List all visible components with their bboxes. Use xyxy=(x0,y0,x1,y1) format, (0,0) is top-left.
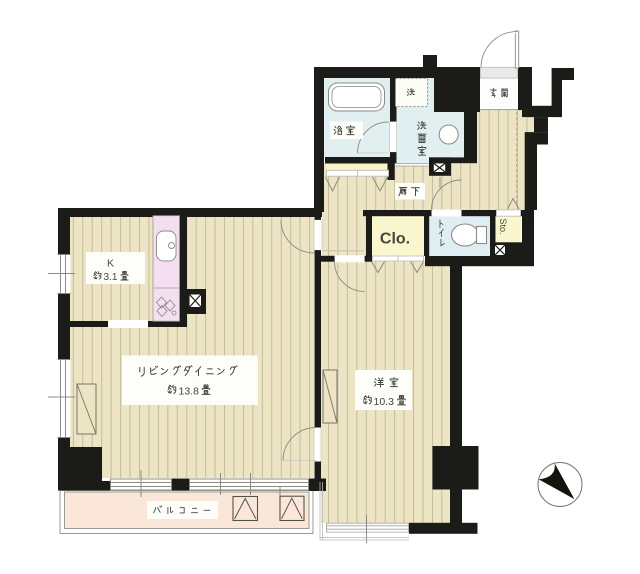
svg-text:Sto.: Sto. xyxy=(498,219,508,235)
svg-text:10.3: 10.3 xyxy=(374,396,395,408)
svg-text:K: K xyxy=(107,258,114,270)
svg-text:13.8: 13.8 xyxy=(179,385,200,397)
svg-text:3.1: 3.1 xyxy=(104,272,118,283)
svg-text:Clo.: Clo. xyxy=(380,231,410,248)
